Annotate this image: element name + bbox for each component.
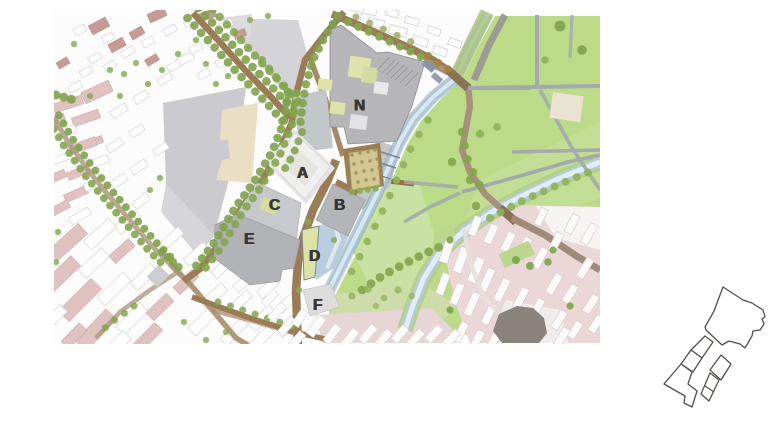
- svg-text:D: D: [309, 248, 320, 265]
- svg-text:F: F: [313, 297, 322, 314]
- svg-text:B: B: [334, 197, 345, 214]
- svg-text:E: E: [244, 231, 254, 248]
- svg-text:C: C: [269, 197, 280, 214]
- svg-text:A: A: [297, 165, 308, 182]
- svg-text:N: N: [354, 98, 365, 115]
